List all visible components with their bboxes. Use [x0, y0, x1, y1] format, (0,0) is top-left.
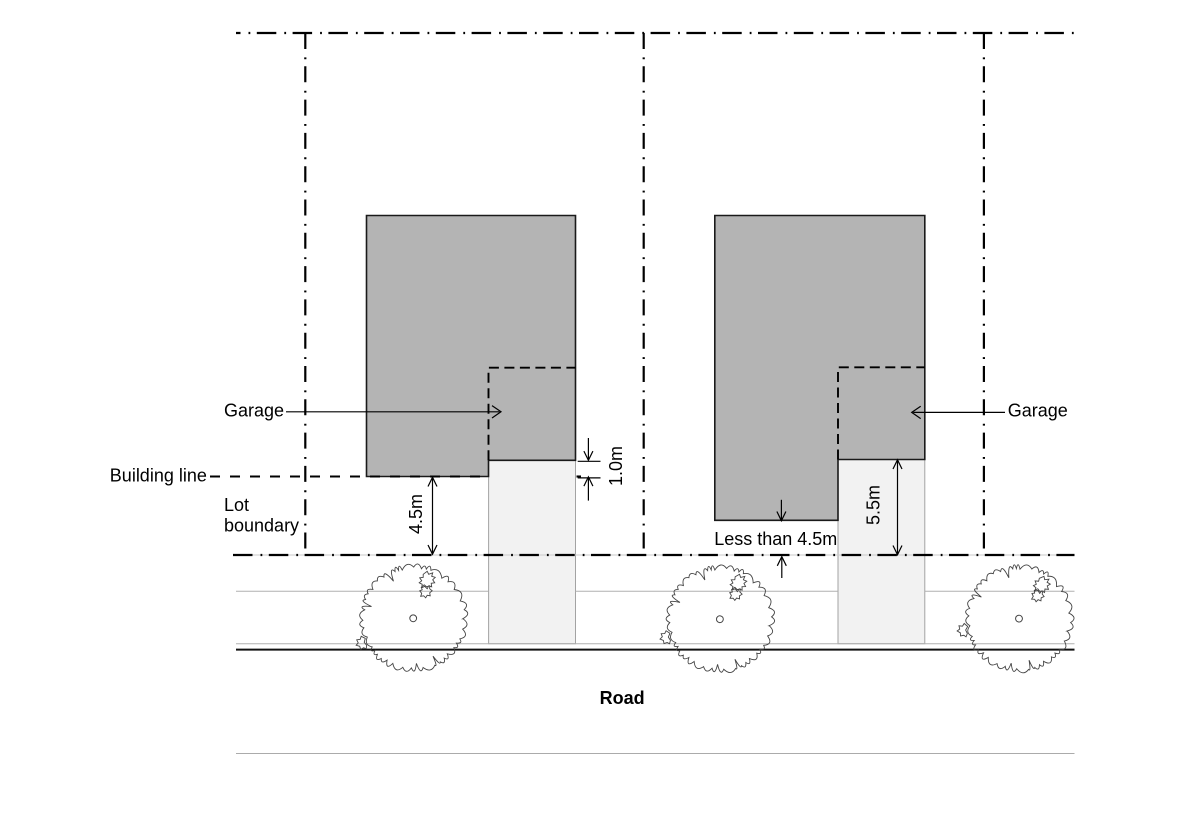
svg-text:boundary: boundary [224, 515, 299, 535]
svg-text:5.5m: 5.5m [863, 485, 883, 525]
svg-text:Garage: Garage [224, 401, 284, 421]
svg-text:1.0m: 1.0m [606, 446, 626, 486]
svg-text:4.5m: 4.5m [406, 494, 426, 534]
svg-text:Road: Road [600, 688, 645, 708]
svg-text:Less than 4.5m: Less than 4.5m [714, 529, 837, 549]
svg-text:Garage: Garage [1008, 401, 1068, 421]
svg-text:Building line: Building line [110, 466, 207, 486]
svg-text:Lot: Lot [224, 495, 249, 515]
